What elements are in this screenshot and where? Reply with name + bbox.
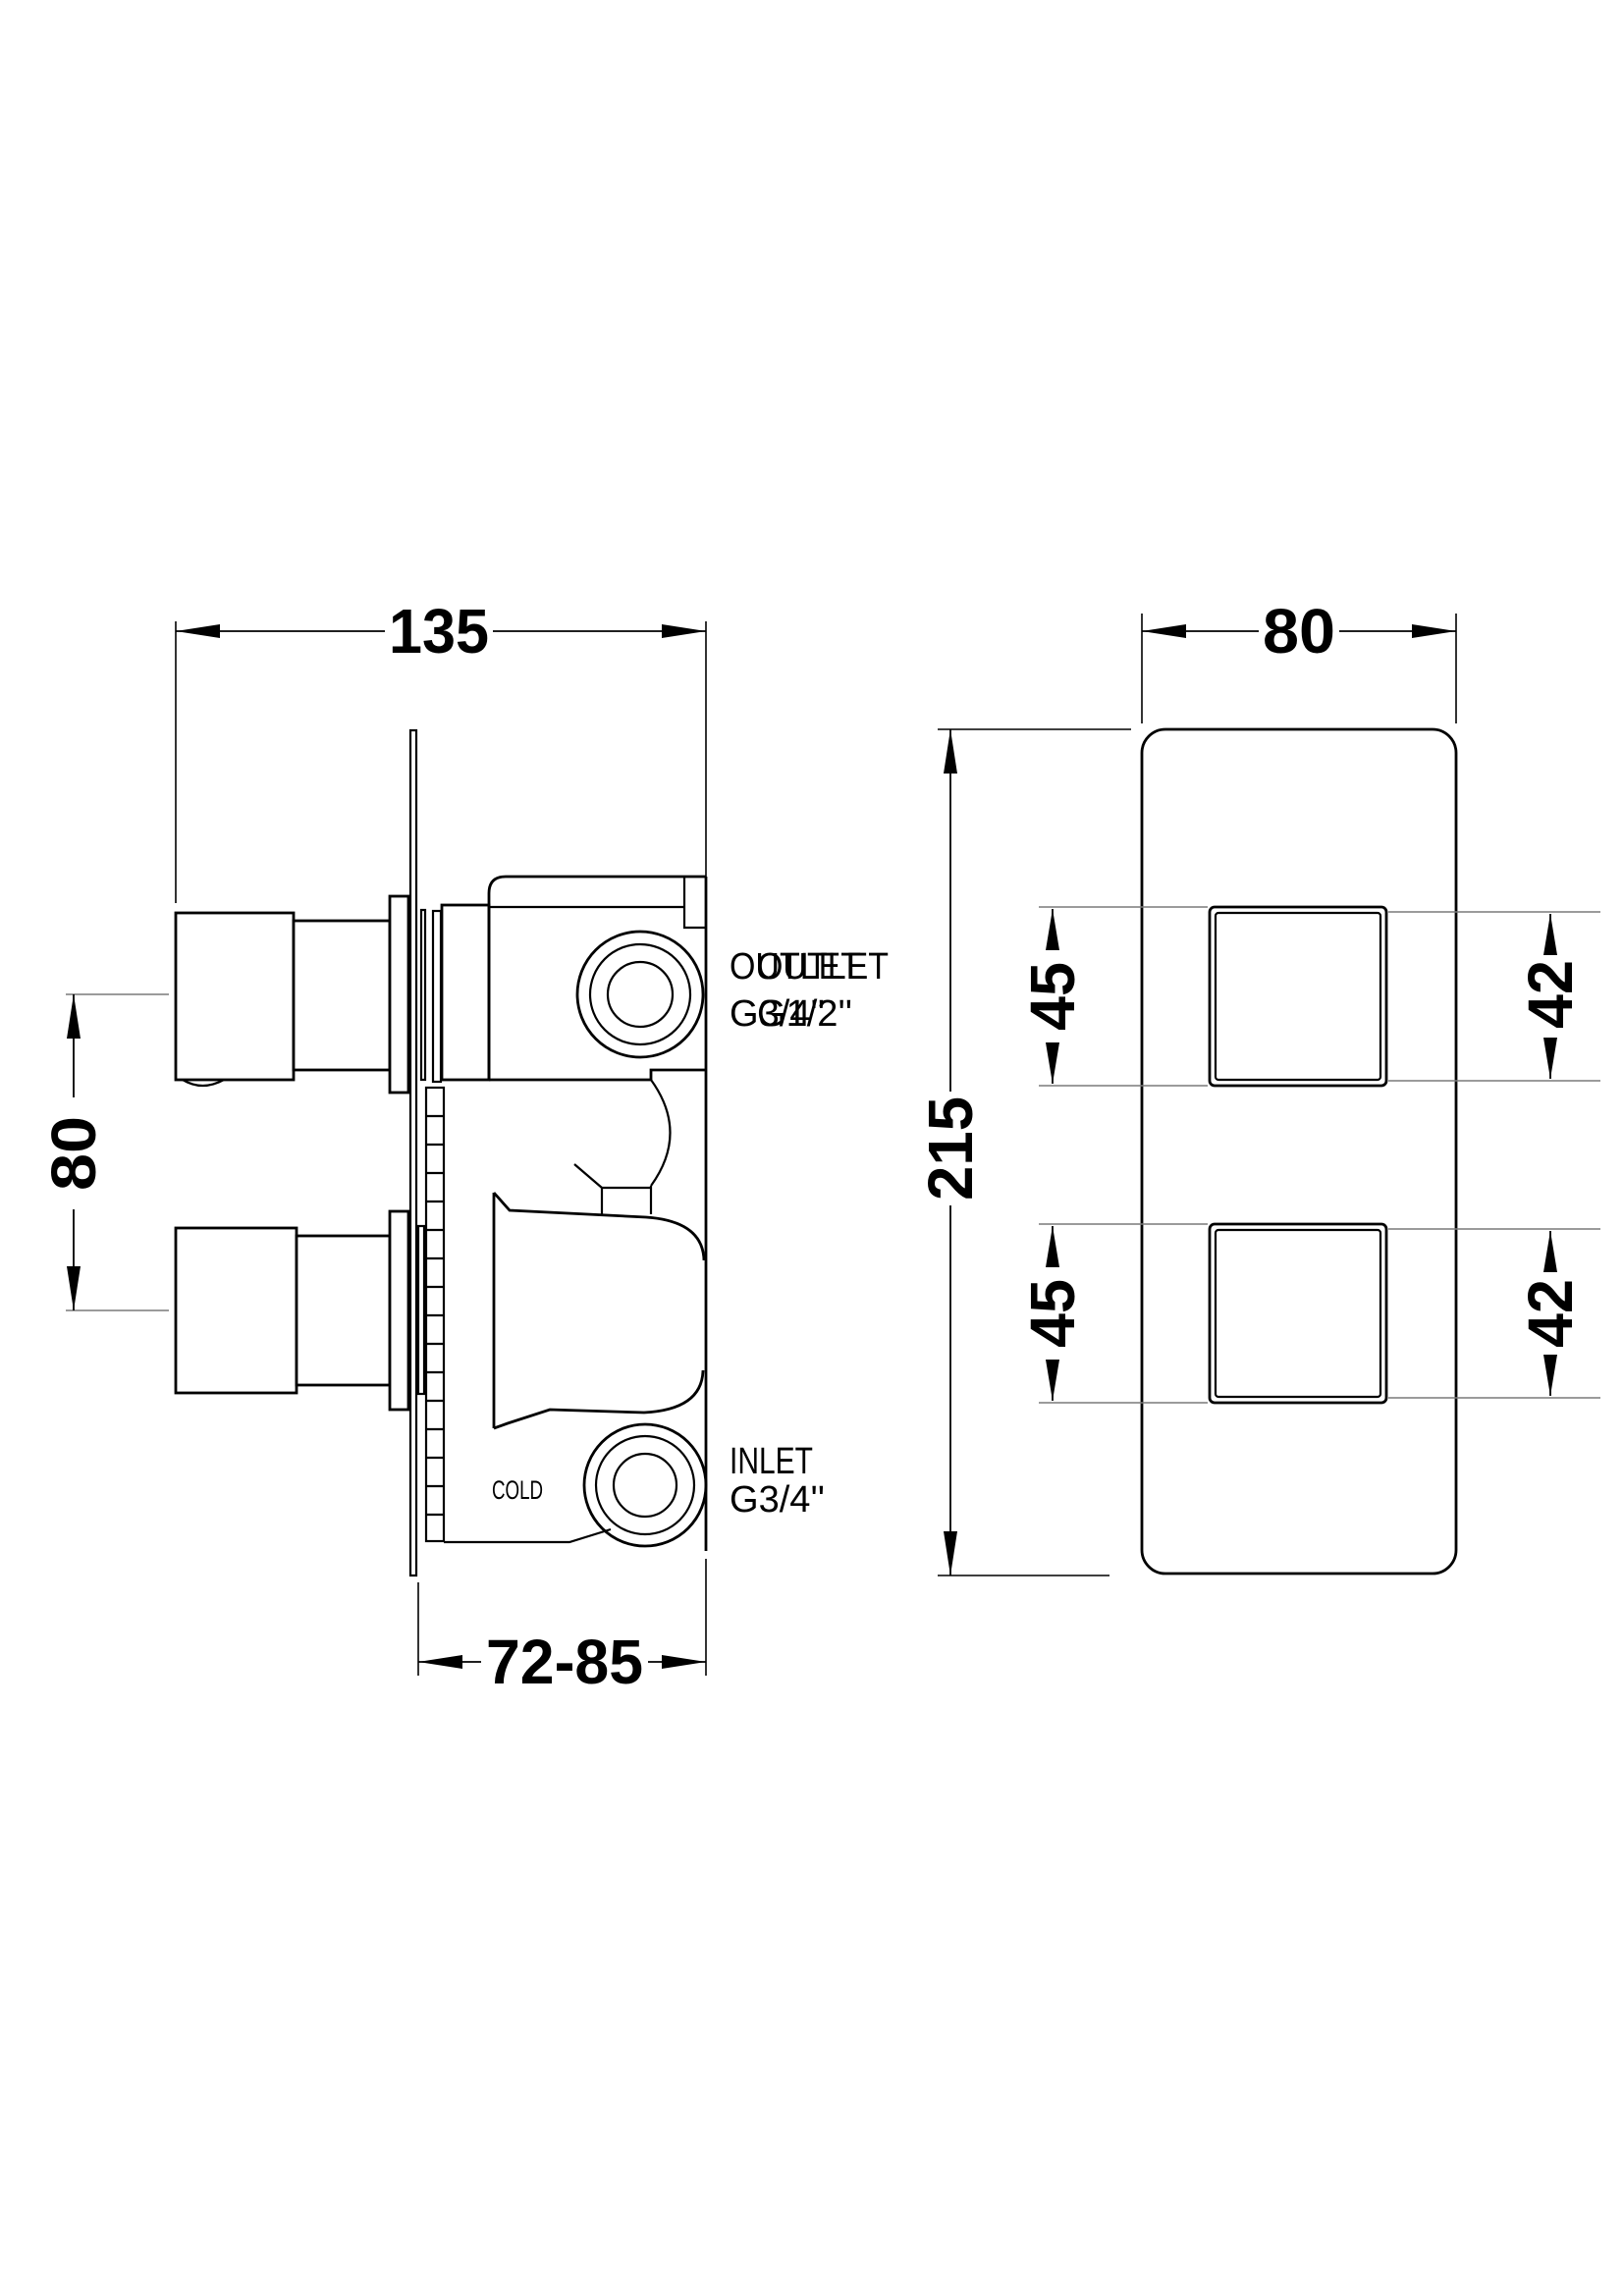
arrow-down-icon [1543, 1355, 1557, 1396]
upper-handle-stem [294, 921, 390, 1070]
dim-panel-width-label: 80 [1263, 596, 1335, 667]
arrow-down-icon [944, 1531, 957, 1575]
outlet-port-mid [590, 944, 690, 1044]
outlet-label-group: OUTLET G3/4'' OUTLET G1/2'' [730, 946, 889, 1035]
dim-lower-inner-42: 42 [1388, 1229, 1600, 1398]
upper-body-block [442, 905, 489, 1080]
serrated-mount-rail [426, 1088, 444, 1541]
lower-square-outer [1210, 1224, 1386, 1403]
upper-square-inner [1216, 913, 1380, 1080]
junction-arc [651, 1080, 671, 1186]
inlet-label-line2: G3/4'' [730, 1479, 825, 1521]
upper-body-corner-notch [684, 877, 706, 928]
arrow-right-icon [662, 624, 706, 638]
cold-label: COLD [492, 1475, 543, 1505]
arrow-up-icon [1046, 1226, 1059, 1267]
dim-upper-inner-42: 42 [1388, 912, 1600, 1081]
cone-bottom [494, 1370, 703, 1428]
dim-wall-depth-72-85: 72-85 [418, 1559, 706, 1697]
arrow-left-icon [176, 624, 220, 638]
inlet-label-group: INLET G3/4'' [730, 1441, 825, 1521]
outlet-label-alt-line1: OUTLET [757, 946, 889, 988]
upper-spacer-strip [421, 910, 425, 1080]
arrow-left-icon [418, 1655, 462, 1669]
upper-handle-assembly [176, 896, 408, 1093]
lower-pipe-line [444, 1529, 611, 1542]
inlet-port-outer [584, 1424, 706, 1546]
body-junction [574, 1080, 671, 1214]
upper-square-outer [1210, 907, 1386, 1086]
rail-teeth [426, 1116, 444, 1515]
cone-top [494, 1193, 704, 1260]
technical-drawing-page: 135 80 72-85 [0, 0, 1623, 2296]
lower-handle-assembly [176, 1211, 408, 1410]
trim-panel [1142, 729, 1456, 1574]
dim-handle-spacing-80: 80 [38, 994, 169, 1310]
dim-width-135: 135 [176, 596, 706, 903]
dim-width-label: 135 [389, 596, 489, 667]
front-view: 80 215 45 [915, 596, 1600, 1575]
dim-upper-inner-label: 42 [1515, 960, 1586, 1029]
arrow-up-icon [1543, 914, 1557, 955]
arrow-down-icon [67, 1266, 81, 1310]
arrow-up-icon [1543, 1231, 1557, 1272]
outlet-port-inner [608, 962, 673, 1027]
arrow-down-icon [1046, 1042, 1059, 1084]
outlet-label-alt-line2: G1/2'' [757, 993, 852, 1035]
upper-mount-rail [433, 911, 441, 1082]
dim-panel-height-label: 215 [915, 1096, 986, 1201]
junction-diagonal [574, 1164, 602, 1188]
dim-upper-square-label: 45 [1017, 962, 1088, 1031]
arrow-left-icon [1142, 624, 1186, 638]
dim-lower-square-45: 45 [1017, 1224, 1208, 1403]
inlet-port-inner [614, 1454, 676, 1517]
arrow-up-icon [67, 994, 81, 1039]
dim-wall-depth-label: 72-85 [486, 1627, 643, 1697]
side-view: 135 80 72-85 [38, 596, 889, 1697]
arrow-up-icon [1046, 909, 1059, 950]
arrow-up-icon [944, 729, 957, 774]
dim-lower-square-label: 45 [1017, 1279, 1088, 1348]
upper-flange [390, 896, 408, 1093]
arrow-down-icon [1543, 1038, 1557, 1079]
lower-valve-body [444, 1193, 706, 1546]
inlet-port-mid [596, 1436, 694, 1534]
lower-square-inner [1216, 1230, 1380, 1397]
lower-spacer-strip [418, 1226, 424, 1394]
lower-handle [176, 1228, 297, 1393]
arrow-right-icon [1412, 624, 1456, 638]
outlet-port-outer [577, 932, 703, 1057]
lower-flange [390, 1211, 408, 1410]
upper-body-bottom-step [489, 1070, 706, 1080]
upper-square-handle [1210, 907, 1386, 1086]
dim-handle-spacing-label: 80 [38, 1116, 109, 1191]
lower-square-handle [1210, 1224, 1386, 1403]
dim-panel-height-215: 215 [915, 729, 1131, 1575]
dim-upper-square-45: 45 [1017, 907, 1208, 1086]
arrow-right-icon [662, 1655, 706, 1669]
inlet-label-line1: INLET [730, 1441, 813, 1482]
upper-handle [176, 913, 294, 1080]
wall-plate [410, 730, 416, 1575]
shower-valve-dimension-drawing: 135 80 72-85 [0, 0, 1623, 2296]
junction-pipe-stub [602, 1186, 651, 1214]
dim-panel-width-80: 80 [1142, 596, 1456, 723]
dim-lower-inner-label: 42 [1515, 1279, 1586, 1348]
arrow-down-icon [1046, 1360, 1059, 1401]
lower-handle-stem [297, 1236, 390, 1385]
